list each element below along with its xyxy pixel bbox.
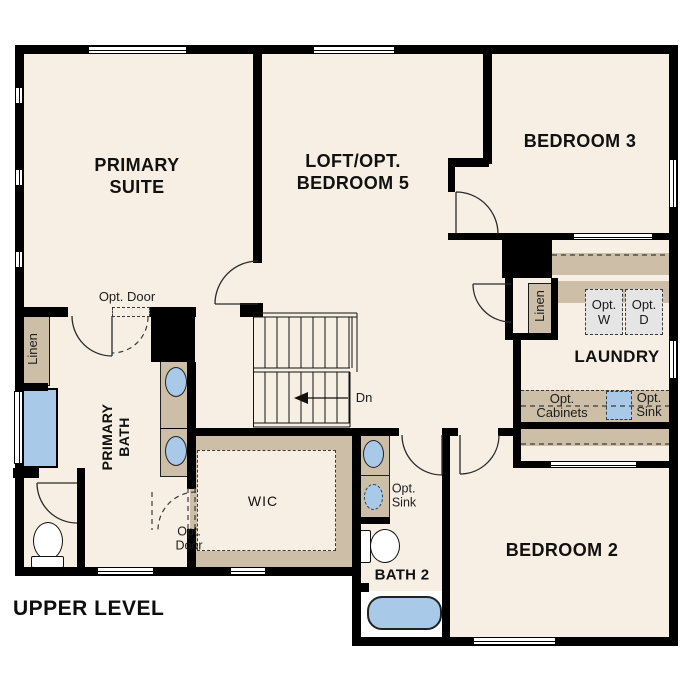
window-suite-top (88, 46, 187, 54)
bath2-sink (363, 440, 384, 468)
wall-bd3-west-a (448, 158, 455, 192)
window-loft-top (313, 46, 395, 54)
opt-door-wic-line1: Opt. (175, 526, 202, 540)
floor-plan: Opt. W Opt. D (0, 0, 687, 687)
label-bedroom2: BEDROOM 2 (506, 539, 619, 561)
label-opt-door-wic: Opt. Door (175, 526, 202, 553)
window-left-2 (15, 169, 23, 186)
opt-sink-bath2-line2: Sink (392, 496, 416, 510)
label-stairs-dn: Dn (356, 391, 373, 405)
wall-bath2-bd2 (442, 428, 450, 646)
bath2-opt-sink (364, 484, 383, 510)
opt-washer-box: Opt. W (585, 289, 623, 335)
wall-suite-south-a (22, 307, 68, 317)
wall-hall-south-e (498, 428, 514, 436)
opt-door-wic-line2: Door (175, 539, 202, 553)
window-bedroom3 (669, 159, 677, 208)
window-wic-bottom-1 (97, 567, 154, 575)
wall-wc-right (77, 468, 85, 575)
wall-below-linen-bath (15, 383, 48, 391)
label-opt-sink-bath2: Opt. Sink (392, 483, 416, 510)
wall-laundry-west-upper (505, 278, 513, 340)
primary-suite-line2: SUITE (94, 176, 179, 198)
wall-loft-bd3-upper (483, 53, 492, 164)
bedroom3-closet-shelf (552, 253, 669, 275)
label-wic: WIC (248, 493, 278, 509)
label-primary-suite: PRIMARY SUITE (94, 154, 179, 198)
primary-toilet-bowl (33, 522, 63, 560)
label-loft: LOFT/OPT. BEDROOM 5 (297, 150, 410, 194)
primary-suite-line1: PRIMARY (94, 154, 179, 176)
wall-tub-stub (352, 583, 369, 592)
wall-laundry-west-lower (513, 335, 521, 468)
label-opt-door-suite: Opt. Door (99, 290, 155, 304)
plan-title: UPPER LEVEL (13, 597, 164, 621)
window-left-3 (15, 251, 23, 268)
window-wic-bottom-2 (230, 567, 266, 575)
wall-stair-chunk (240, 303, 263, 317)
primary-bath-line2: BATH (116, 404, 133, 471)
opt-sink-laundry-line2: Sink (636, 405, 661, 419)
window-laundry (669, 340, 677, 379)
label-bedroom3: BEDROOM 3 (524, 130, 637, 152)
wall-below-cabinets (513, 422, 669, 429)
opt-cabinets-line1: Opt. (536, 392, 587, 406)
shower (22, 388, 58, 468)
wall-bd3-south-e (653, 233, 676, 240)
laundry-opt-sink (606, 391, 632, 420)
bathtub (367, 596, 442, 630)
opt-cabinets-line2: Cabinets (536, 406, 587, 420)
label-bath2: BATH 2 (375, 567, 430, 584)
wall-suite-loft (253, 53, 262, 263)
wall-bd3-south-w (448, 233, 573, 240)
bedroom2-closet-shelf (521, 429, 669, 446)
wall-linen-hall-east (551, 278, 558, 340)
primary-bath-line1: PRIMARY (99, 404, 116, 471)
sliding-door-bedroom3-closet (573, 233, 653, 240)
window-shower (14, 391, 23, 464)
opt-sink-bath2-line1: Opt. (392, 483, 416, 497)
opt-door-suite-opening (112, 307, 150, 317)
wall-below-bath2-vanity (352, 517, 390, 524)
wall-hall-south (187, 428, 399, 436)
loft-line1: LOFT/OPT. (297, 150, 410, 172)
opt-sink-laundry-line1: Opt. (636, 391, 661, 405)
opt-dryer-label-2: D (639, 312, 648, 327)
primary-sink-1 (165, 367, 187, 397)
window-bedroom2 (473, 637, 556, 645)
wall-closet2-front-w (513, 461, 551, 468)
primary-sink-2 (165, 436, 187, 466)
bath2-toilet-bowl (370, 529, 400, 563)
opt-washer-label-2: W (598, 312, 610, 327)
wall-bath-wic-upper (187, 362, 196, 489)
label-linen-hall: Linen (533, 290, 547, 322)
window-left-1 (15, 87, 23, 104)
opt-washer-label-1: Opt. (592, 297, 617, 312)
label-linen-bath: Linen (26, 333, 40, 365)
wall-bath-chunk (151, 316, 195, 362)
label-laundry: LAUNDRY (574, 346, 659, 368)
wall-bath2-west (352, 428, 361, 646)
opt-dryer-box: Opt. D (625, 289, 663, 335)
wall-wc-top (13, 468, 39, 478)
label-primary-bath: PRIMARY BATH (99, 404, 133, 471)
wall-closet2-front-e (637, 461, 669, 468)
opt-dryer-label-1: Opt. (632, 297, 657, 312)
loft-line2: BEDROOM 5 (297, 172, 410, 194)
sliding-door-bedroom2-closet (550, 461, 637, 468)
wall-hall-chunk (502, 240, 552, 278)
label-opt-sink-laundry: Opt. Sink (636, 391, 661, 419)
label-opt-cabinets: Opt. Cabinets (536, 392, 587, 420)
